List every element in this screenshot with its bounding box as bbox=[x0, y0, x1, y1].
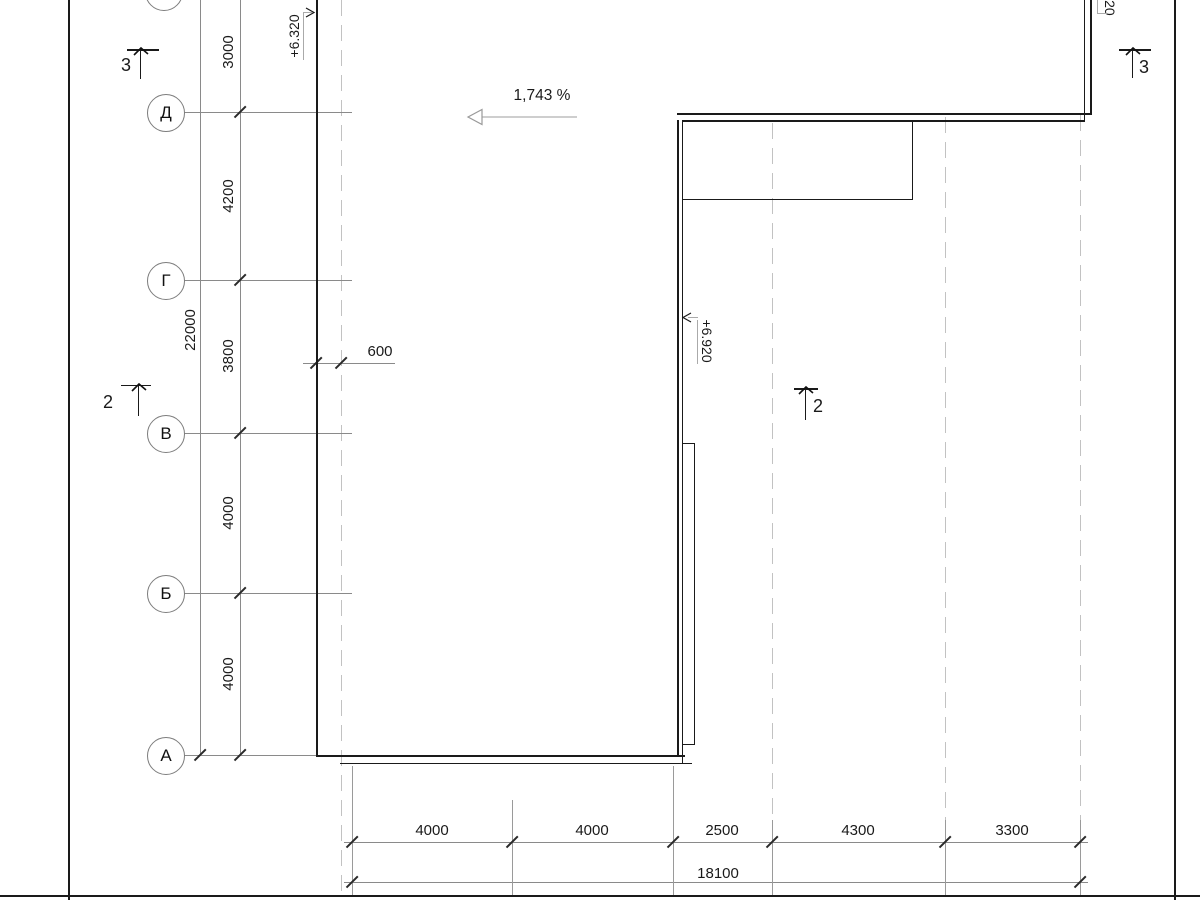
axis-bubble-v: В bbox=[147, 415, 185, 453]
section-2-right-label: 2 bbox=[808, 396, 828, 417]
dim-left-4200: 4200 bbox=[221, 156, 237, 236]
elevation-mid-label: +6.920 bbox=[699, 306, 715, 376]
building-bottom-inner bbox=[340, 763, 692, 765]
dim-bottom-4300: 4300 bbox=[818, 823, 898, 839]
elevation-mid-arrow-icon bbox=[681, 312, 692, 323]
section-3-right-arrow-icon bbox=[1125, 46, 1141, 56]
dim-line-bottom-total bbox=[344, 882, 1088, 883]
wing-right-edge-outer bbox=[1090, 0, 1092, 115]
roof-plan-drawing: Д Г В Б А 3000 4200 3800 4000 4000 22000… bbox=[0, 0, 1200, 900]
section-3-right-label: 3 bbox=[1134, 57, 1154, 78]
parapet-rect bbox=[682, 443, 695, 745]
building-left-edge bbox=[316, 0, 318, 757]
axis-line-g bbox=[183, 280, 352, 281]
section-3-left-label: 3 bbox=[116, 55, 136, 76]
axis-bubble-d: Д bbox=[147, 94, 185, 132]
axis-line-b bbox=[183, 593, 352, 594]
dim-left-3000: 3000 bbox=[221, 12, 237, 92]
dim-line-left-chain bbox=[240, 0, 241, 756]
dim-600: 600 bbox=[355, 344, 405, 360]
gridline-dashed-3 bbox=[945, 117, 946, 820]
axis-line-v bbox=[183, 433, 352, 434]
axis-bubble-a: А bbox=[147, 737, 185, 775]
gridline-dashed-4 bbox=[1080, 115, 1081, 820]
frame-left bbox=[68, 0, 70, 900]
dim-line-left-total bbox=[200, 0, 201, 756]
dim-line-bottom-chain bbox=[344, 842, 1088, 843]
elevation-mid-leader bbox=[697, 320, 698, 364]
section-2-left-label: 2 bbox=[98, 392, 118, 413]
dim-bottom-3300: 3300 bbox=[972, 823, 1052, 839]
frame-bottom bbox=[0, 895, 1200, 898]
axis-line-d bbox=[183, 112, 352, 113]
axis-bubble-b: Б bbox=[147, 575, 185, 613]
elevation-left-arrow-icon bbox=[305, 7, 316, 18]
axis-bubble-top-partial bbox=[145, 0, 183, 11]
wing-bottom-edge-outer bbox=[677, 113, 1092, 115]
axis-bubble-g: Г bbox=[147, 262, 185, 300]
building-bottom-edge bbox=[316, 755, 685, 757]
elevation-top-right-leader bbox=[1097, 13, 1107, 14]
dim-bottom-total-18100: 18100 bbox=[673, 866, 763, 882]
slope-label: 1,743 % bbox=[482, 88, 602, 104]
dim-bottom-2500: 2500 bbox=[682, 823, 762, 839]
dim-bottom-4000-1: 4000 bbox=[392, 823, 472, 839]
dim-left-total-22000: 22000 bbox=[183, 290, 199, 370]
roof-structure-rect bbox=[682, 121, 913, 200]
dim-left-4000-2: 4000 bbox=[221, 634, 237, 714]
wing-right-edge-inner bbox=[1084, 0, 1085, 121]
elevation-left-label: +6.320 bbox=[286, 1, 302, 71]
elevation-left-leader bbox=[303, 13, 304, 60]
gridline-dashed-2 bbox=[772, 123, 773, 820]
dim-left-4000-1: 4000 bbox=[221, 473, 237, 553]
frame-right bbox=[1174, 0, 1176, 900]
section-2-left-arrow-icon bbox=[131, 382, 147, 392]
section-2-right-arrow-icon bbox=[798, 385, 814, 395]
building-right-edge-outer bbox=[677, 120, 679, 757]
slope-arrow-icon bbox=[465, 105, 580, 129]
dim-bottom-4000-2: 4000 bbox=[552, 823, 632, 839]
dim-left-3800: 3800 bbox=[221, 316, 237, 396]
